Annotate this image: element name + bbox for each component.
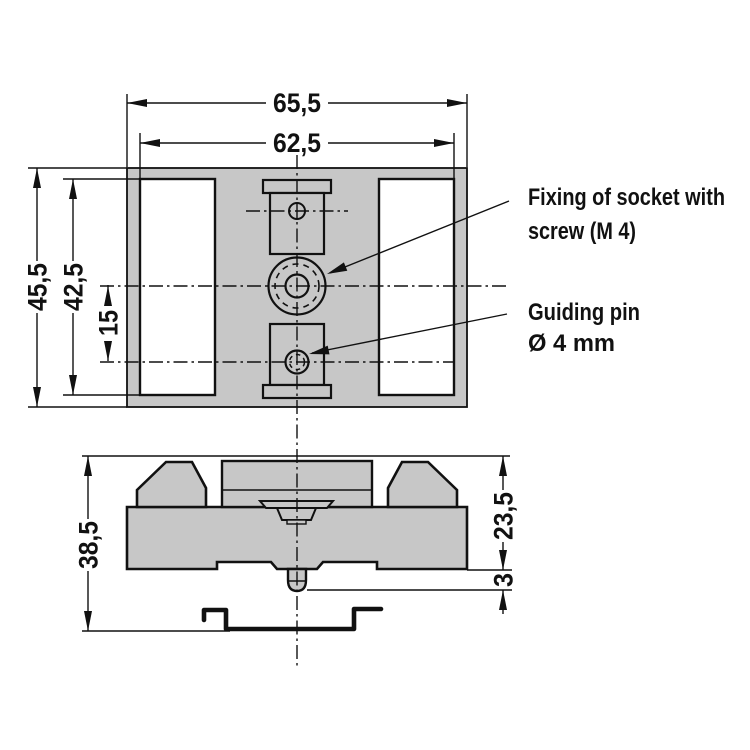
dim-cutout-height-text: 42,5	[59, 263, 89, 311]
dim-pin-protrusion-text: 3	[489, 573, 519, 587]
dim-outer-width-text: 65,5	[273, 88, 321, 118]
left-clamp-wing	[137, 462, 206, 507]
dim-inner-width-text: 62,5	[273, 128, 321, 158]
din-rail-profile	[204, 609, 381, 629]
guiding-label-line1: Guiding pin	[528, 299, 640, 326]
right-clamp-wing	[388, 462, 457, 507]
dim-side-upper-height-text: 23,5	[489, 492, 519, 540]
fixing-label-line1: Fixing of socket with	[528, 184, 725, 211]
technical-drawing-page: 65,5 62,5 45,5 42,5 15	[0, 0, 750, 750]
right-cutout	[379, 179, 454, 395]
annotation-guiding-pin: Guiding pin Ø 4 mm	[528, 299, 640, 357]
guiding-label-line2: Ø 4 mm	[528, 330, 615, 357]
dim-side-upper-height: 23,5	[489, 456, 519, 570]
dim-hole-spacing-text: 15	[94, 310, 124, 336]
fixing-label-line2: screw (M 4)	[528, 218, 636, 245]
dim-side-total-height-text: 38,5	[74, 521, 104, 569]
annotation-fixing-screw: Fixing of socket with screw (M 4)	[528, 184, 725, 245]
dim-hole-spacing: 15	[94, 285, 124, 361]
din-rail-adapter-drawing: 65,5 62,5 45,5 42,5 15	[0, 0, 750, 750]
dim-pin-protrusion: 3	[489, 573, 519, 614]
dim-side-total-height: 38,5	[74, 456, 104, 631]
dim-outer-height-text: 45,5	[23, 263, 53, 311]
